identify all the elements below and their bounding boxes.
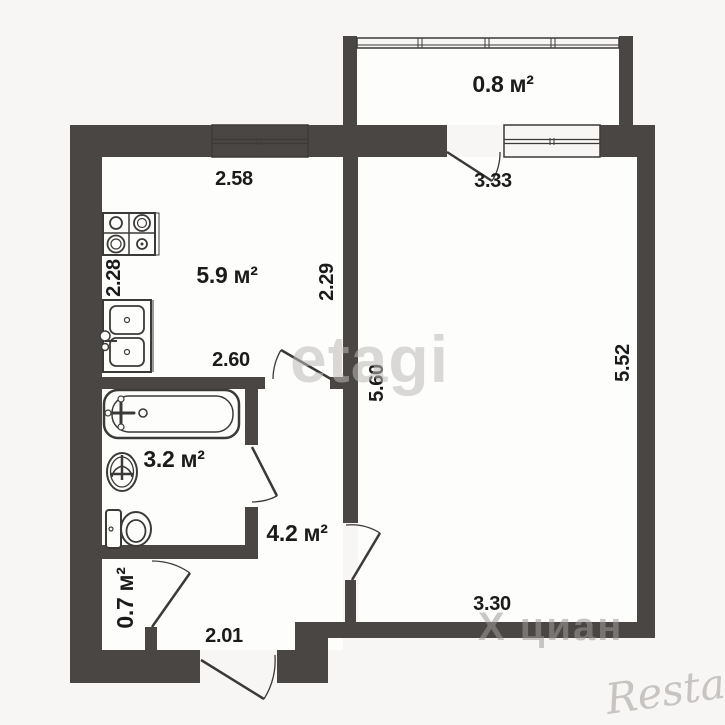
washbasin-icon <box>107 453 137 491</box>
wall-kitchen-bottom <box>102 377 265 389</box>
wall-balcony-right <box>619 36 633 125</box>
dim-kitchen-left: 2.28 <box>103 259 125 297</box>
wall-right-outer <box>637 125 655 638</box>
kitchen-area-label: 5.9 м² <box>196 262 258 288</box>
bathtub-icon <box>104 390 239 438</box>
entrance-door <box>201 655 275 699</box>
dim-kitchen-top: 2.58 <box>215 168 253 190</box>
wall-top-kitchen <box>70 125 358 157</box>
balcony-window <box>504 125 600 157</box>
glazing-ticks <box>418 38 555 48</box>
kitchen-sink-icon <box>100 300 153 372</box>
restate-watermark: Restate <box>602 653 725 724</box>
wall-balcony-left <box>343 36 357 125</box>
dim-kitchen-bottom: 2.60 <box>212 349 250 371</box>
wall-bathroom-right-upper <box>245 389 258 445</box>
dim-living-top: 3.33 <box>474 170 512 192</box>
wall-bottom-right-of-door <box>277 650 295 683</box>
closet-area-label: 0.7 м² <box>112 567 138 629</box>
wall-left-outer <box>70 125 102 683</box>
dim-hall-bottom: 2.01 <box>205 625 243 647</box>
balcony-glazing <box>357 38 619 48</box>
floor-plan: 0.8 м² 5.9 м² 3.2 м² 4.2 м² 0.7 м² 2.58 … <box>0 0 725 725</box>
bathroom-area-label: 3.2 м² <box>143 446 205 472</box>
wall-bathroom-bottom <box>102 545 258 559</box>
hallway-area-label: 4.2 м² <box>266 520 328 546</box>
glazing-band <box>357 38 619 48</box>
toilet-icon <box>106 510 151 548</box>
dim-kitchen-right: 2.29 <box>316 263 338 301</box>
balcony-area-label: 0.8 м² <box>472 71 534 97</box>
wall-middle-lower-stub <box>345 580 356 622</box>
wall-step-block <box>295 622 328 683</box>
dim-living-right: 5.52 <box>612 344 634 382</box>
floor-plan-canvas: 0.8 м² 5.9 м² 3.2 м² 4.2 м² 0.7 м² 2.58 … <box>0 0 725 725</box>
wall-bottom-left <box>70 650 200 683</box>
stove-icon <box>103 213 159 255</box>
etagi-watermark: etagi <box>290 322 449 396</box>
wall-under-balcony <box>358 125 447 157</box>
cian-watermark: Х циан <box>478 605 623 649</box>
wall-closet-right <box>145 627 157 650</box>
